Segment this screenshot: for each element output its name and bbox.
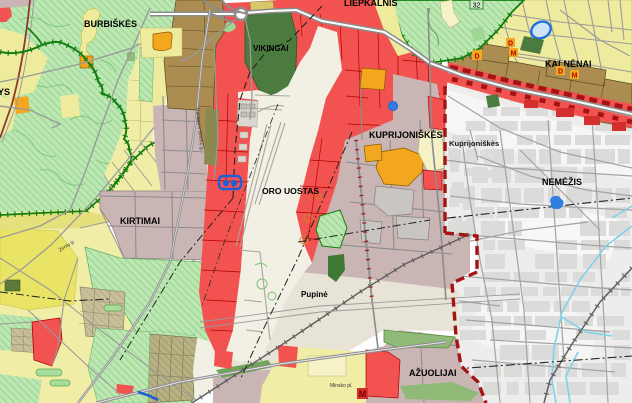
svg-text:M: M [511,51,517,58]
svg-text:KUPRIJONIŠKĖS: KUPRIJONIŠKĖS [369,129,443,140]
svg-text:AŽUOLIJAI: AŽUOLIJAI [409,367,457,378]
svg-text:NEMĖŽIS: NEMĖŽIS [542,176,582,187]
svg-text:M: M [359,389,367,399]
svg-text:LIEPKALNIS: LIEPKALNIS [344,0,398,8]
svg-text:ORO UOSTAS: ORO UOSTAS [262,186,319,196]
svg-text:D: D [474,54,479,61]
svg-text:D: D [508,41,513,48]
svg-text:YS: YS [0,87,10,97]
svg-text:VIKINGAI: VIKINGAI [253,44,289,53]
svg-text:32: 32 [473,3,481,10]
svg-text:M: M [572,73,578,80]
svg-text:KIRTIMAI: KIRTIMAI [120,216,160,226]
svg-text:Pupinė: Pupinė [301,290,328,299]
svg-text:BURBIŠKĖS: BURBIŠKĖS [84,18,137,29]
svg-text:D: D [558,69,563,76]
svg-text:Kuprijoniškės: Kuprijoniškės [449,139,499,148]
svg-text:KALNĖNAI: KALNĖNAI [545,59,592,69]
svg-text:Minsko pl.: Minsko pl. [330,383,353,389]
